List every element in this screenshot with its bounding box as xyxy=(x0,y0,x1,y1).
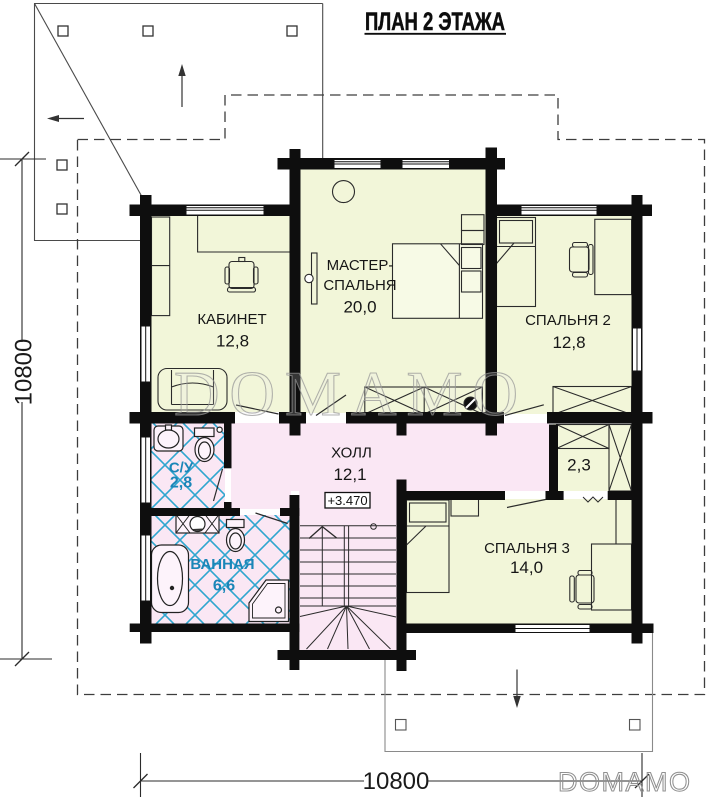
svg-text:СПАЛЬНЯ 3: СПАЛЬНЯ 3 xyxy=(484,540,570,557)
svg-text:14,0: 14,0 xyxy=(510,558,543,577)
svg-text:DOMAMO: DOMAMO xyxy=(558,767,692,797)
svg-text:ПЛАН 2 ЭТАЖА: ПЛАН 2 ЭТАЖА xyxy=(365,8,505,36)
svg-text:ХОЛЛ: ХОЛЛ xyxy=(331,445,372,462)
svg-text:СПАЛЬНЯ 2: СПАЛЬНЯ 2 xyxy=(525,312,611,329)
svg-text:СПАЛЬНЯ: СПАЛЬНЯ xyxy=(323,277,396,294)
svg-text:10800: 10800 xyxy=(11,339,38,406)
svg-text:10800: 10800 xyxy=(363,768,430,795)
svg-text:DOMAMO: DOMAMO xyxy=(174,359,528,429)
svg-text:12,8: 12,8 xyxy=(552,333,585,352)
svg-text:12,1: 12,1 xyxy=(333,465,366,484)
svg-text:6,6: 6,6 xyxy=(213,578,235,595)
svg-text:КАБИНЕТ: КАБИНЕТ xyxy=(197,311,266,328)
svg-text:+3.470: +3.470 xyxy=(327,493,367,508)
svg-text:МАСТЕР-: МАСТЕР- xyxy=(327,257,394,274)
svg-text:2,8: 2,8 xyxy=(170,475,192,492)
svg-text:ВАННАЯ: ВАННАЯ xyxy=(190,556,254,573)
svg-text:2,3: 2,3 xyxy=(567,456,591,475)
svg-text:12,8: 12,8 xyxy=(216,332,249,351)
svg-text:20,0: 20,0 xyxy=(343,298,376,317)
